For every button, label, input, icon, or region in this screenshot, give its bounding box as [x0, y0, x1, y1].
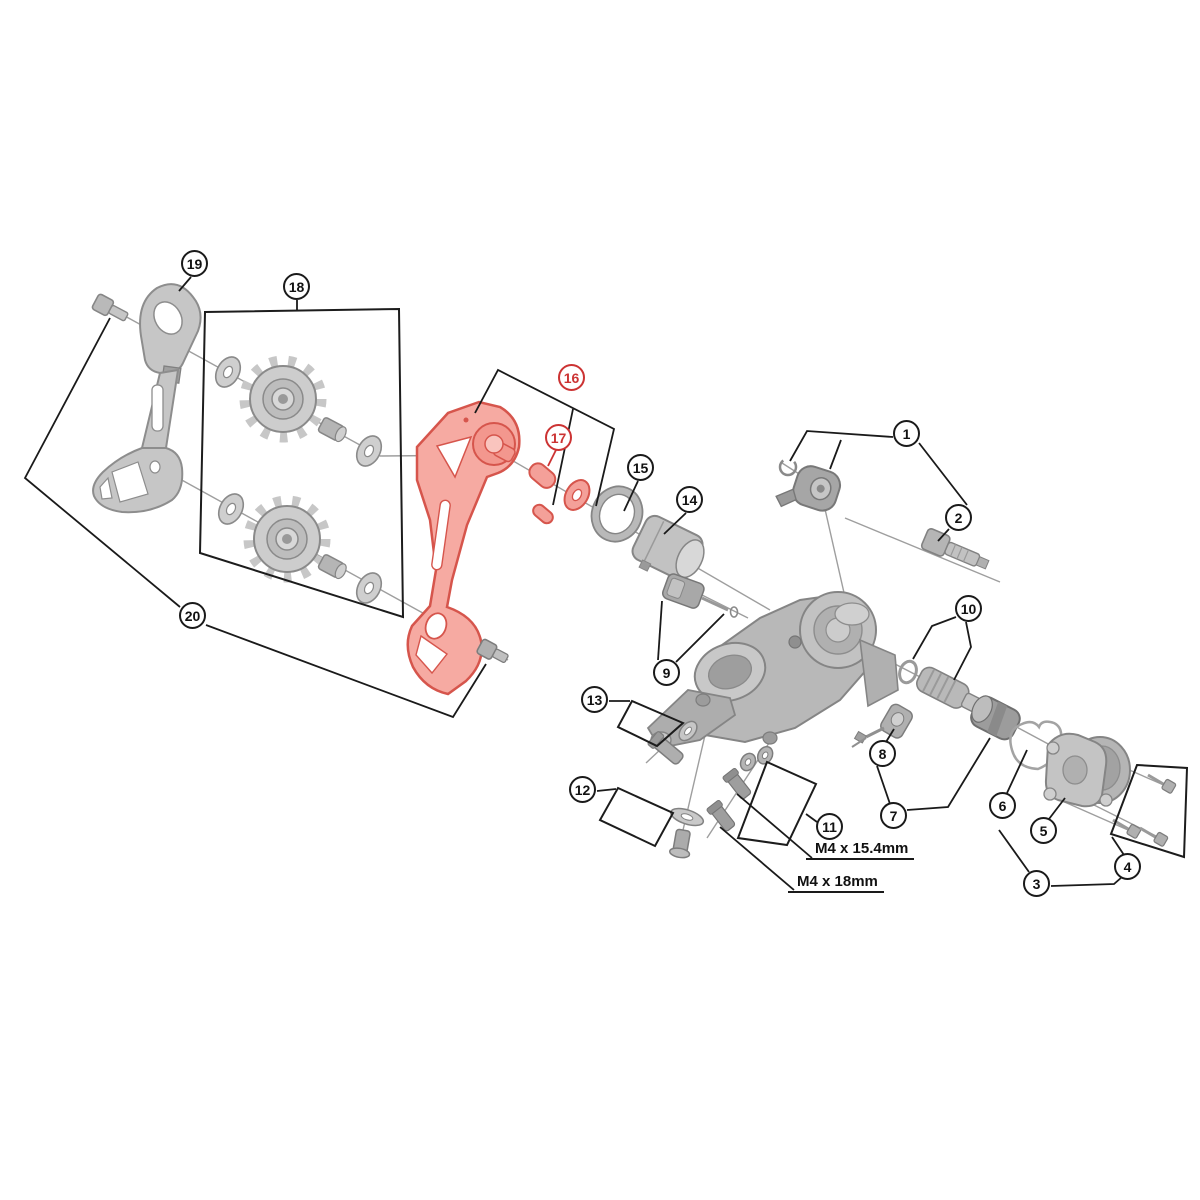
cable-fixing-unit — [661, 572, 737, 617]
diagram-art — [0, 0, 1200, 1200]
callout-11: 11 — [816, 813, 843, 840]
callout-8: 8 — [869, 740, 896, 767]
stopper-plate-bolt — [669, 805, 706, 859]
outer-plate-highlighted — [408, 402, 520, 694]
plate-bolt-upper — [91, 293, 130, 324]
callout-2: 2 — [945, 504, 972, 531]
callout-3: 3 — [1023, 870, 1050, 897]
pulley-set — [211, 353, 386, 608]
callout-9: 9 — [653, 659, 680, 686]
callout-10: 10 — [955, 595, 982, 622]
callout-1: 1 — [893, 420, 920, 447]
screw-spec-lower-label: M4 x 18mm — [788, 873, 884, 893]
screw-spec-upper-label: M4 x 15.4mm — [806, 840, 914, 860]
callout-13: 13 — [581, 686, 608, 713]
bracket-axle-bolt — [920, 528, 991, 575]
callout-12: 12 — [569, 776, 596, 803]
callout-14: 14 — [676, 486, 703, 513]
callout-19: 19 — [181, 250, 208, 277]
callout-7: 7 — [880, 802, 907, 829]
callout-6: 6 — [989, 792, 1016, 819]
callout-18: 18 — [283, 273, 310, 300]
callout-16-highlighted: 16 — [558, 364, 585, 391]
callout-15: 15 — [627, 454, 654, 481]
callout-4: 4 — [1114, 853, 1141, 880]
bracket-axle-unit — [774, 456, 844, 522]
plate-bolt-lower — [476, 638, 510, 666]
callout-17-highlighted: 17 — [545, 424, 572, 451]
callout-5: 5 — [1030, 817, 1057, 844]
exploded-diagram-canvas: 1 2 3 4 5 6 7 8 9 10 11 12 13 14 15 16 1… — [0, 0, 1200, 1200]
callout-20: 20 — [179, 602, 206, 629]
motor-cover-unit — [1044, 734, 1130, 807]
parts-layer — [91, 284, 1176, 859]
